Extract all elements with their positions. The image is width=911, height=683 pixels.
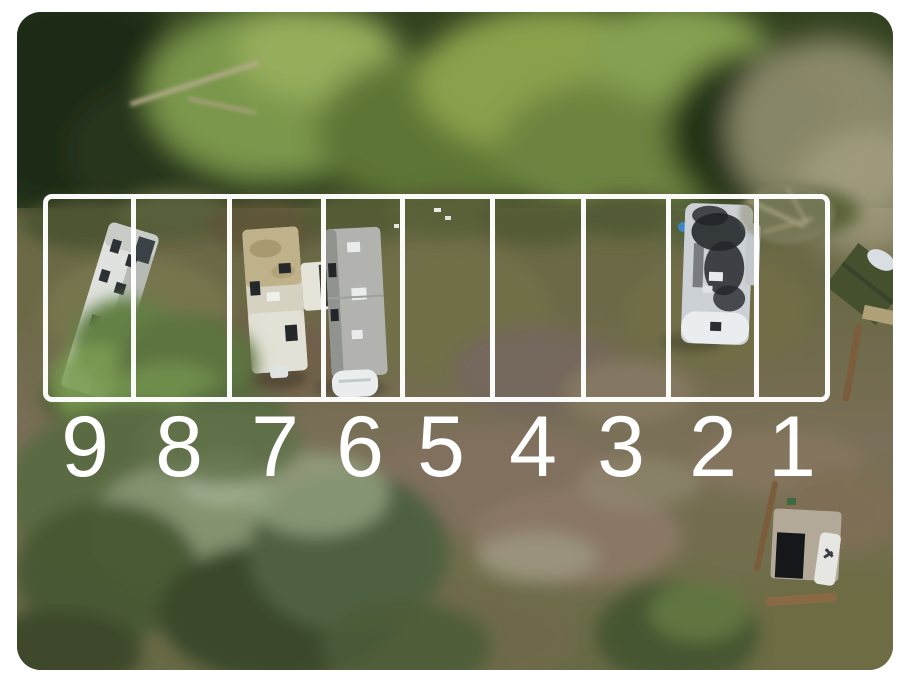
lot-cell-3	[583, 199, 668, 397]
lot-cell-8	[133, 199, 229, 397]
aerial-photo: 987654321	[17, 12, 893, 670]
dark-garage	[775, 532, 805, 578]
lot-divider	[227, 199, 232, 397]
lot-number-8: 8	[155, 404, 203, 490]
lot-number-4: 4	[509, 404, 557, 490]
lot-number-7: 7	[251, 404, 299, 490]
lot-divider	[131, 199, 136, 397]
lot-cell-9	[43, 199, 133, 397]
lot-number-5: 5	[417, 404, 465, 490]
lot-divider	[321, 199, 326, 397]
lot-divider	[400, 199, 405, 397]
lot-divider	[754, 199, 759, 397]
lot-cell-1	[756, 199, 830, 397]
lot-divider	[490, 199, 495, 397]
lot-number-2: 2	[689, 404, 737, 490]
lot-number-3: 3	[597, 404, 645, 490]
lot-divider	[581, 199, 586, 397]
lot-number-9: 9	[61, 404, 109, 490]
lot-divider	[666, 199, 671, 397]
lot-cell-6	[323, 199, 402, 397]
lot-cell-2	[668, 199, 756, 397]
photo-frame: 987654321	[0, 0, 911, 683]
lot-grid	[43, 194, 830, 402]
lot-number-1: 1	[768, 404, 816, 490]
lot-cell-5	[402, 199, 492, 397]
lot-cell-7	[229, 199, 323, 397]
lot-cell-4	[492, 199, 583, 397]
lot-number-6: 6	[336, 404, 384, 490]
green-marker	[787, 498, 796, 505]
